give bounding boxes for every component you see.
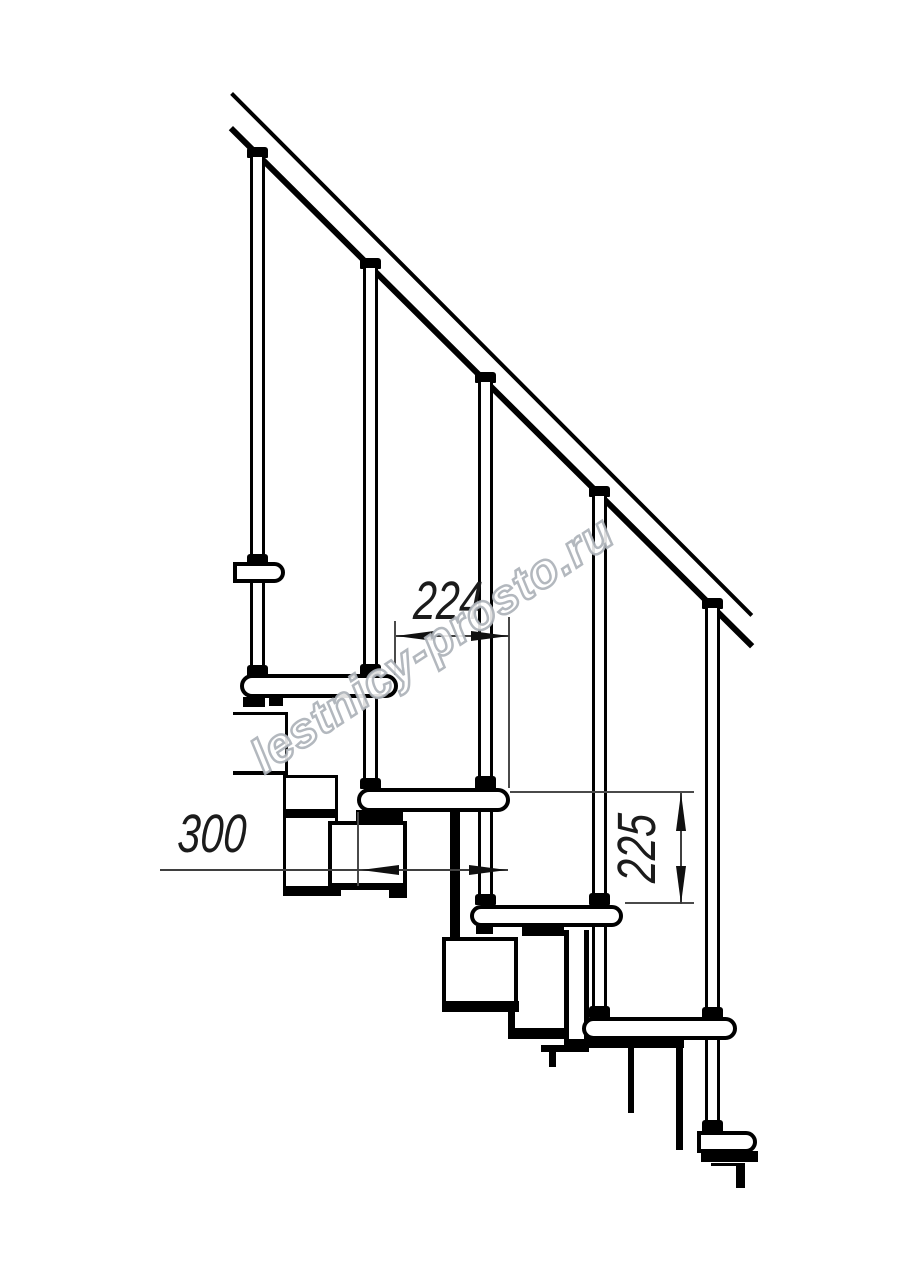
baluster-1-tube-lower [250,583,265,667]
tread-5 [697,1131,757,1153]
support-box-under-tread-3 [328,821,407,890]
dim-300-label: 300 [167,803,257,865]
tread-3 [470,905,623,927]
tread-1-foot-right [269,697,283,706]
upper-landing-edge [233,562,285,583]
support-post-3-4 [450,812,460,938]
baluster-1-tube-upper [250,157,265,556]
support-nub-under-tread-4 [476,926,493,934]
dim-300-arrow-right [469,865,507,875]
staircase-drawing: 224 300 225 lestnicy-prosto.ru [0,0,914,1280]
support-line-right-under-tread-5 [676,1046,683,1150]
baluster-3-tube-lower [478,812,493,895]
support-step-line-6 [711,1163,739,1166]
baluster-4-tube-lower [592,925,607,1007]
dim-300-line [160,869,508,871]
baluster-3-bottom-connector [475,894,496,905]
dim-225-label: 225 [606,803,668,893]
watermark-text: lestnicy-prosto.ru [241,505,624,785]
support-bracket-under-tread-5 [565,1039,684,1048]
baluster-2-tube-upper [363,268,378,665]
baluster-4-mid-connector [589,893,610,905]
dim-224-extension-right [508,617,510,788]
support-collar-2-3 [283,809,338,818]
support-bracket-under-tread-4 [522,926,564,936]
support-flange-stub-5 [549,1051,556,1067]
tread-2 [357,788,510,812]
tread-4 [582,1017,737,1040]
dim-225-text: 225 [606,812,668,884]
baluster-5-tube [705,608,720,1121]
support-nub-3 [389,889,407,898]
support-box-under-tread-4 [442,937,518,1005]
dim-225-arrow-up [676,793,686,831]
dim-225-arrow-down [676,866,686,904]
dim-300-arrow-left [361,865,399,875]
support-line-left-under-tread-5 [628,1047,634,1113]
dim-225-extension-top [510,791,694,793]
tread-1-foot-left [243,697,265,707]
dim-300-text: 300 [176,803,248,865]
dim-300-extension [357,812,359,886]
support-post-6 [736,1163,745,1188]
